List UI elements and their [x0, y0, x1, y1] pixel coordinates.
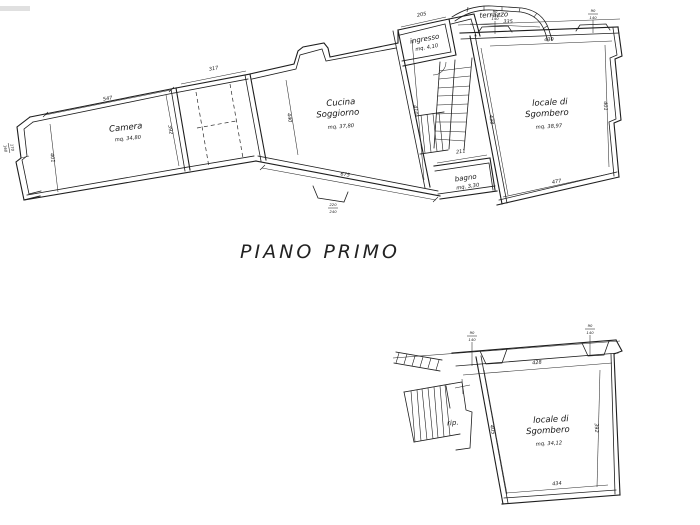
svg-text:220: 220: [329, 202, 337, 207]
scan-smudge: [0, 6, 30, 11]
svg-text:240: 240: [329, 209, 337, 214]
room-label-sgombero-upper-1: locale di: [532, 97, 569, 109]
area-label-bagno: mq. 3,30: [456, 182, 480, 191]
window-mark-sgombero-2: 90 140: [588, 8, 598, 33]
room-label-cucina-2: Soggiorno: [316, 108, 360, 121]
room-label-rip: rip.: [447, 419, 459, 428]
area-label-ingresso: mq. 4,10: [415, 43, 440, 53]
room-sgombero-upper: 90 140 90 140 430 477: [458, 8, 622, 205]
room-camera: 547 401 392 Camera mq. 34,80 170 160: [2, 87, 190, 200]
window-mark-lower-1: 90 140: [467, 330, 477, 366]
dim-terrazzo: 335: [503, 19, 513, 25]
svg-text:140: 140: [491, 16, 499, 21]
area-label-cucina: mq. 37,80: [328, 123, 356, 131]
dim-sgombero-left: 438: [487, 115, 495, 126]
dim-camera-right: 392: [166, 125, 174, 135]
svg-text:90: 90: [591, 8, 596, 13]
lower-plan: 90 140 90 140: [393, 323, 622, 504]
dim-ingresso-top: 205: [417, 11, 428, 19]
area-label-sgombero-upper: mq. 38,97: [536, 123, 563, 130]
svg-text:140: 140: [468, 337, 476, 342]
left-tip-walls: [16, 117, 41, 200]
dim-sgombero-bottom: 477: [552, 178, 563, 186]
dim-cucina-left: 440: [285, 113, 292, 123]
svg-text:140: 140: [589, 15, 597, 20]
room-label-sgombero-lower-2: Sgombero: [526, 425, 570, 437]
room-label-sgombero-upper-2: Sgombero: [525, 108, 569, 120]
room-label-sgombero-lower-1: locale di: [533, 414, 570, 426]
dim-lower-right: 392: [593, 423, 599, 433]
dim-lower-top: 428: [532, 360, 542, 367]
area-label-sgombero-lower: mq. 34,12: [536, 440, 563, 447]
room-bagno: 211 bagno mq. 3,30: [434, 148, 497, 199]
room-label-camera: Camera: [109, 121, 143, 134]
staircase-lower: [404, 379, 470, 442]
svg-text:170: 170: [9, 143, 15, 152]
floorplan-drawing: 547 401 392 Camera mq. 34,80 170 160: [0, 0, 700, 525]
dim-cucina-right: 410: [412, 105, 419, 115]
svg-text:90: 90: [470, 330, 475, 335]
dim-lower-left: 405: [488, 425, 496, 436]
window-mark-cucina: 220 240: [328, 202, 338, 214]
dim-camera-left: 401: [48, 153, 55, 163]
svg-text:90: 90: [493, 9, 498, 14]
dim-sgombero-top: 430: [544, 37, 554, 43]
room-cucina-soggiorno: 220 240 675 440 410 Cucina Soggiorno mq.…: [245, 30, 440, 214]
upper-plan: 547 401 392 Camera mq. 34,80 170 160: [2, 6, 622, 214]
area-label-camera: mq. 34,80: [114, 135, 142, 144]
room-label-bagno: bagno: [454, 173, 477, 184]
dim-corridor-top: 317: [209, 65, 220, 73]
floorplan-page: 547 401 392 Camera mq. 34,80 170 160: [0, 0, 700, 525]
svg-text:90: 90: [588, 323, 593, 328]
corridor: 317: [174, 65, 256, 172]
plan-title: PIANO PRIMO: [240, 241, 400, 263]
svg-text:140: 140: [586, 330, 594, 335]
window-mark-camera: 170 160: [2, 142, 16, 154]
dim-lower-bottom: 434: [552, 481, 562, 488]
window-mark-lower-2: 90 140: [585, 323, 595, 356]
svg-text:160: 160: [2, 145, 8, 154]
room-rip: rip.: [446, 382, 472, 450]
dim-sgombero-right: 401: [602, 101, 608, 111]
dim-bagno-top: 211: [456, 148, 466, 155]
room-sgombero-lower: 428 434 392 405 locale di Sgombero mq. 3…: [452, 340, 622, 504]
room-ingresso: 205 ingresso mq. 4,10: [398, 11, 456, 75]
